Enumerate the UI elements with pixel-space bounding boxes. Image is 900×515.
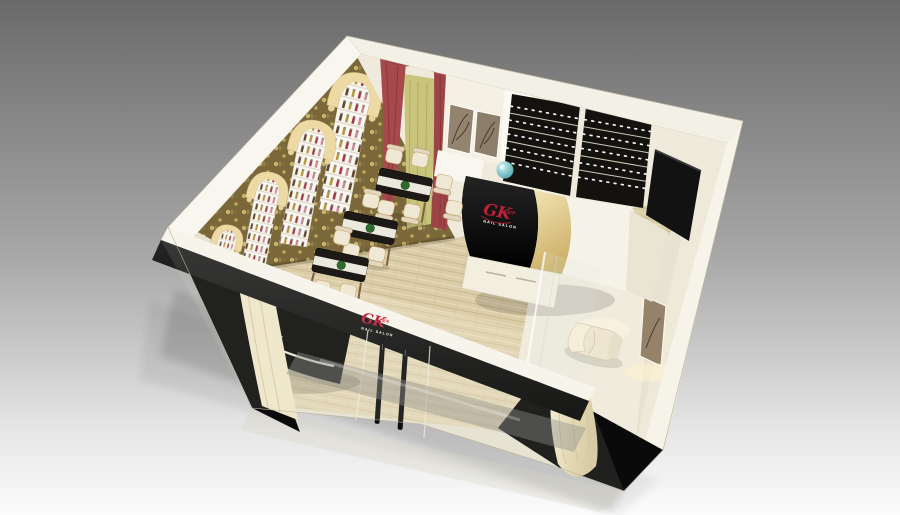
- polish-display-rack: [503, 94, 580, 196]
- salon-render-stage: GK 美甲 NAIL SALON: [0, 0, 900, 515]
- salon-render: GK 美甲 NAIL SALON: [0, 0, 900, 515]
- tree-art-panel: [474, 111, 501, 158]
- tree-art-panel: [447, 104, 474, 154]
- teal-ball-lamp: [497, 162, 514, 179]
